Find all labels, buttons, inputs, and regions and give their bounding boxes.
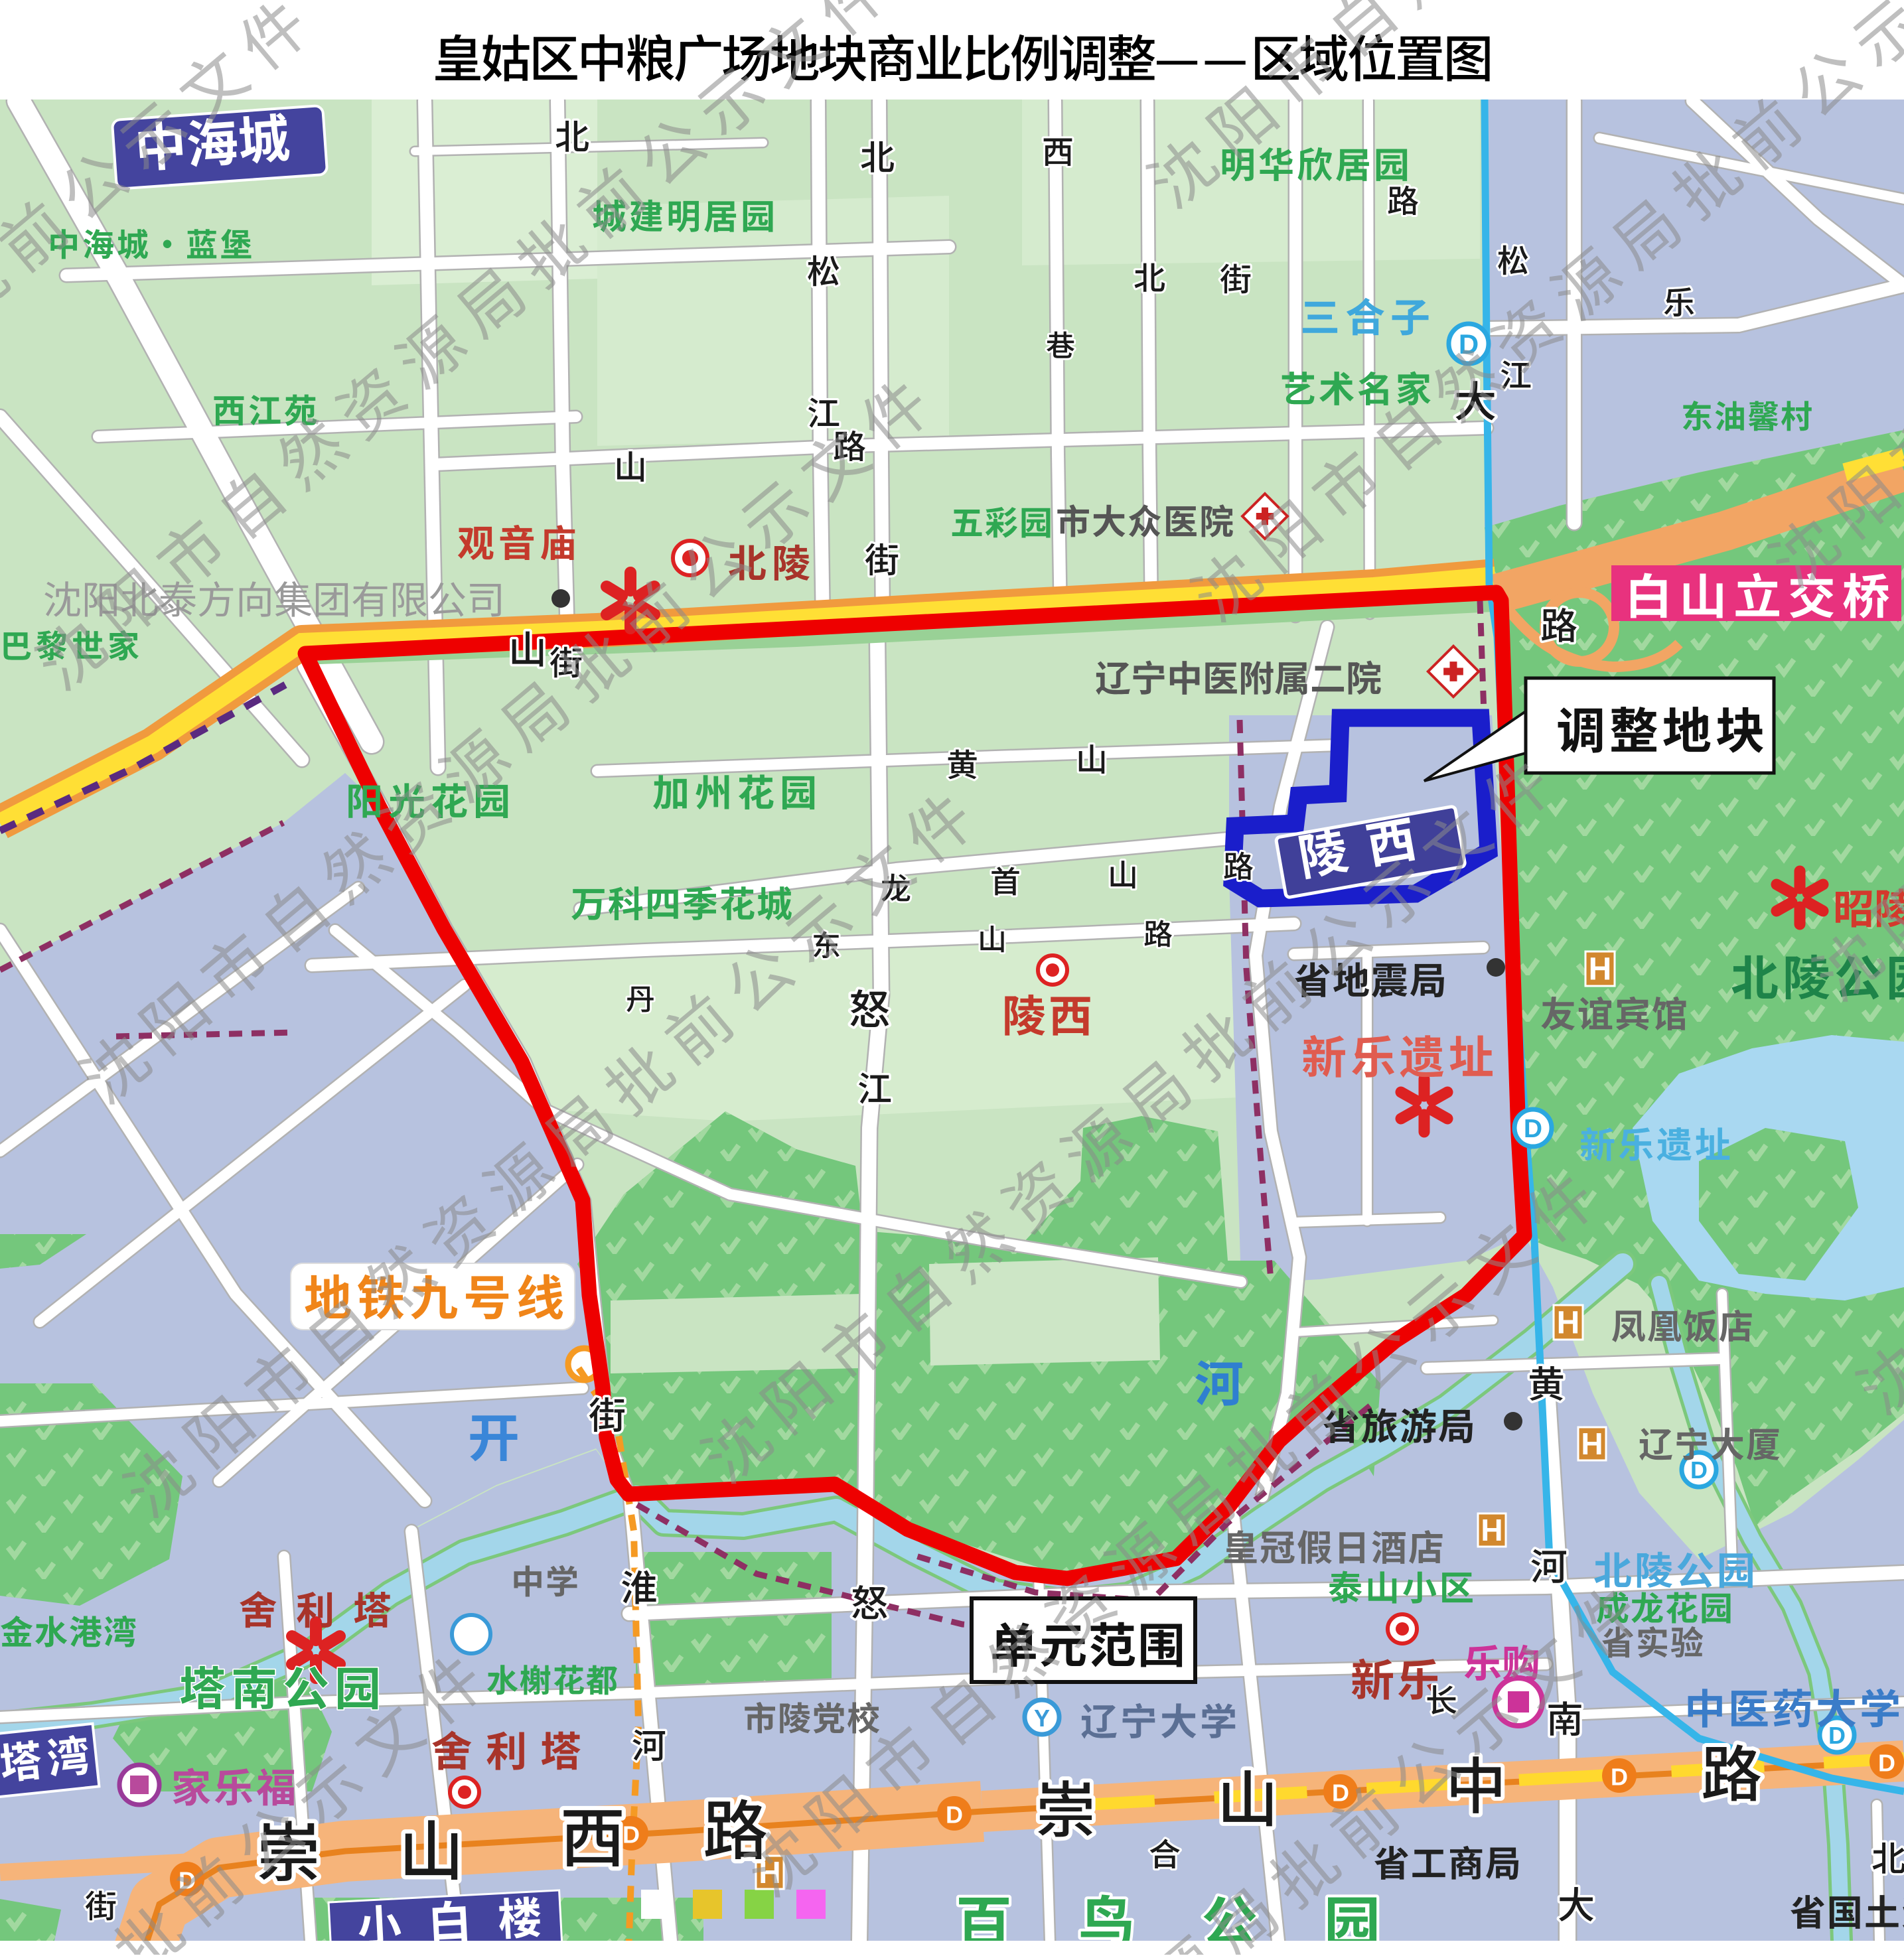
- svg-text:Y: Y: [1034, 1705, 1050, 1732]
- svg-text:H: H: [1581, 1427, 1603, 1461]
- svg-text:H: H: [1481, 1513, 1502, 1547]
- svg-text:H: H: [1589, 952, 1612, 987]
- svg-text:D: D: [1690, 1456, 1708, 1484]
- svg-text:D: D: [1878, 1749, 1895, 1776]
- svg-text:D: D: [1611, 1763, 1628, 1790]
- svg-text:D: D: [1459, 328, 1479, 360]
- svg-text:D: D: [946, 1801, 963, 1828]
- svg-text:D: D: [622, 1821, 640, 1848]
- svg-text:D: D: [1332, 1779, 1349, 1806]
- svg-text:D: D: [1524, 1115, 1542, 1143]
- svg-text:D: D: [1828, 1722, 1846, 1749]
- svg-text:H: H: [1557, 1306, 1580, 1341]
